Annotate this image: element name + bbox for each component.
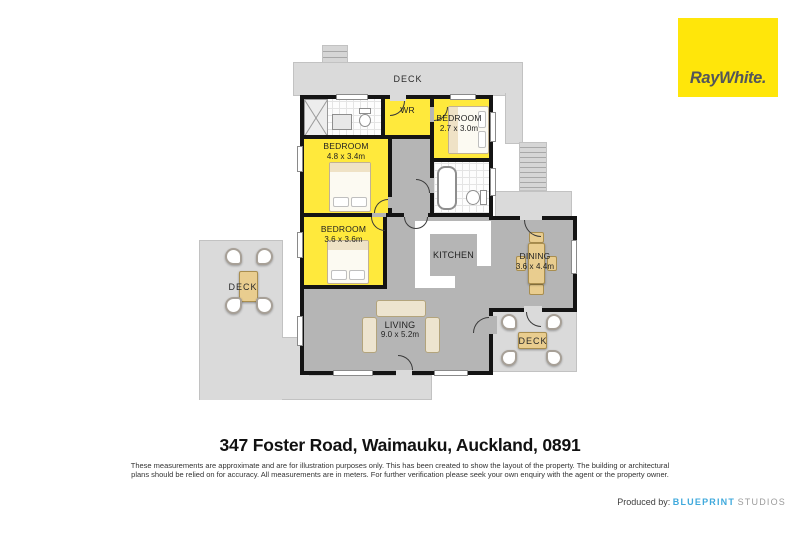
pillow	[331, 270, 347, 280]
wall-segment	[428, 213, 493, 217]
wardrobe	[304, 99, 328, 137]
producer-credit: Produced by: BLUEPRINT STUDIOS	[617, 497, 786, 507]
pillow	[478, 131, 486, 148]
deck-right-label: DECK	[508, 336, 558, 346]
bedroom-2-label: BEDROOM 2.7 x 3.0m	[430, 114, 488, 133]
wall-segment	[300, 285, 387, 289]
bed-blanket	[330, 163, 370, 172]
toilet	[466, 190, 480, 205]
door-gap	[520, 212, 542, 220]
producer-brand: BLUEPRINT	[673, 497, 735, 507]
window	[297, 316, 303, 346]
outdoor-chair	[501, 350, 517, 366]
outdoor-chair	[256, 248, 273, 265]
entry-steps	[322, 45, 348, 63]
outdoor-chair	[256, 297, 273, 314]
window	[490, 112, 496, 142]
window	[297, 146, 303, 172]
wall-segment	[386, 213, 404, 217]
pillow	[351, 197, 367, 207]
wardrobe-x-icon	[304, 99, 328, 137]
raywhite-logo: RayWhite.	[678, 18, 778, 97]
side-path	[505, 93, 523, 144]
wall-segment	[300, 213, 372, 217]
producer-suffix: STUDIOS	[738, 497, 786, 507]
door-gap	[489, 316, 497, 334]
bedroom-3-label: BEDROOM 3.6 x 3.6m	[304, 225, 383, 244]
window	[434, 370, 468, 376]
wall-segment	[430, 99, 434, 107]
kitchen-opening	[455, 266, 491, 288]
window	[450, 94, 476, 100]
wall-segment	[300, 135, 432, 139]
bedroom-1-label: BEDROOM 4.8 x 3.4m	[304, 142, 388, 161]
deck-bottom-strip	[309, 375, 432, 400]
deck-top-label: DECK	[294, 74, 522, 84]
outdoor-chair	[225, 297, 242, 314]
pillow	[349, 270, 365, 280]
deck-top: DECK	[293, 62, 523, 96]
raywhite-logo-text: RayWhite.	[678, 69, 778, 88]
kitchen-label: KITCHEN	[430, 250, 477, 260]
toilet-tank	[480, 190, 487, 205]
disclaimer-line-1: These measurements are approximate and a…	[80, 461, 720, 470]
deck-left	[199, 240, 283, 400]
bathtub	[437, 166, 457, 210]
floorplan-page: DECK DECK DECK	[0, 0, 800, 534]
vanity	[332, 114, 352, 130]
exterior-stairs	[519, 142, 547, 191]
property-address: 347 Foster Road, Waimauku, Auckland, 089…	[0, 435, 800, 456]
sofa	[376, 300, 426, 317]
dining-chair	[529, 284, 544, 295]
outdoor-chair	[546, 350, 562, 366]
window	[490, 168, 496, 196]
toilet	[359, 114, 371, 127]
door-gap	[396, 370, 412, 376]
produced-by-label: Produced by:	[617, 497, 670, 507]
disclaimer-line-2: plans should be relied on for accuracy. …	[80, 470, 720, 479]
pillow	[333, 197, 349, 207]
window	[336, 94, 368, 100]
outdoor-chair	[501, 314, 517, 330]
wall-segment	[381, 99, 385, 135]
window	[333, 370, 373, 376]
wall-segment	[430, 158, 493, 162]
deck-left-label: DECK	[218, 282, 268, 292]
wr-label: WR	[385, 106, 430, 116]
living-label: LIVING 9.0 x 5.2m	[340, 320, 460, 340]
outdoor-chair	[546, 314, 562, 330]
outdoor-chair	[225, 248, 242, 265]
dining-label: DINING 3.6 x 4.4m	[497, 252, 573, 271]
door-gap	[390, 93, 406, 101]
window	[297, 232, 303, 258]
wall-segment	[388, 139, 392, 197]
